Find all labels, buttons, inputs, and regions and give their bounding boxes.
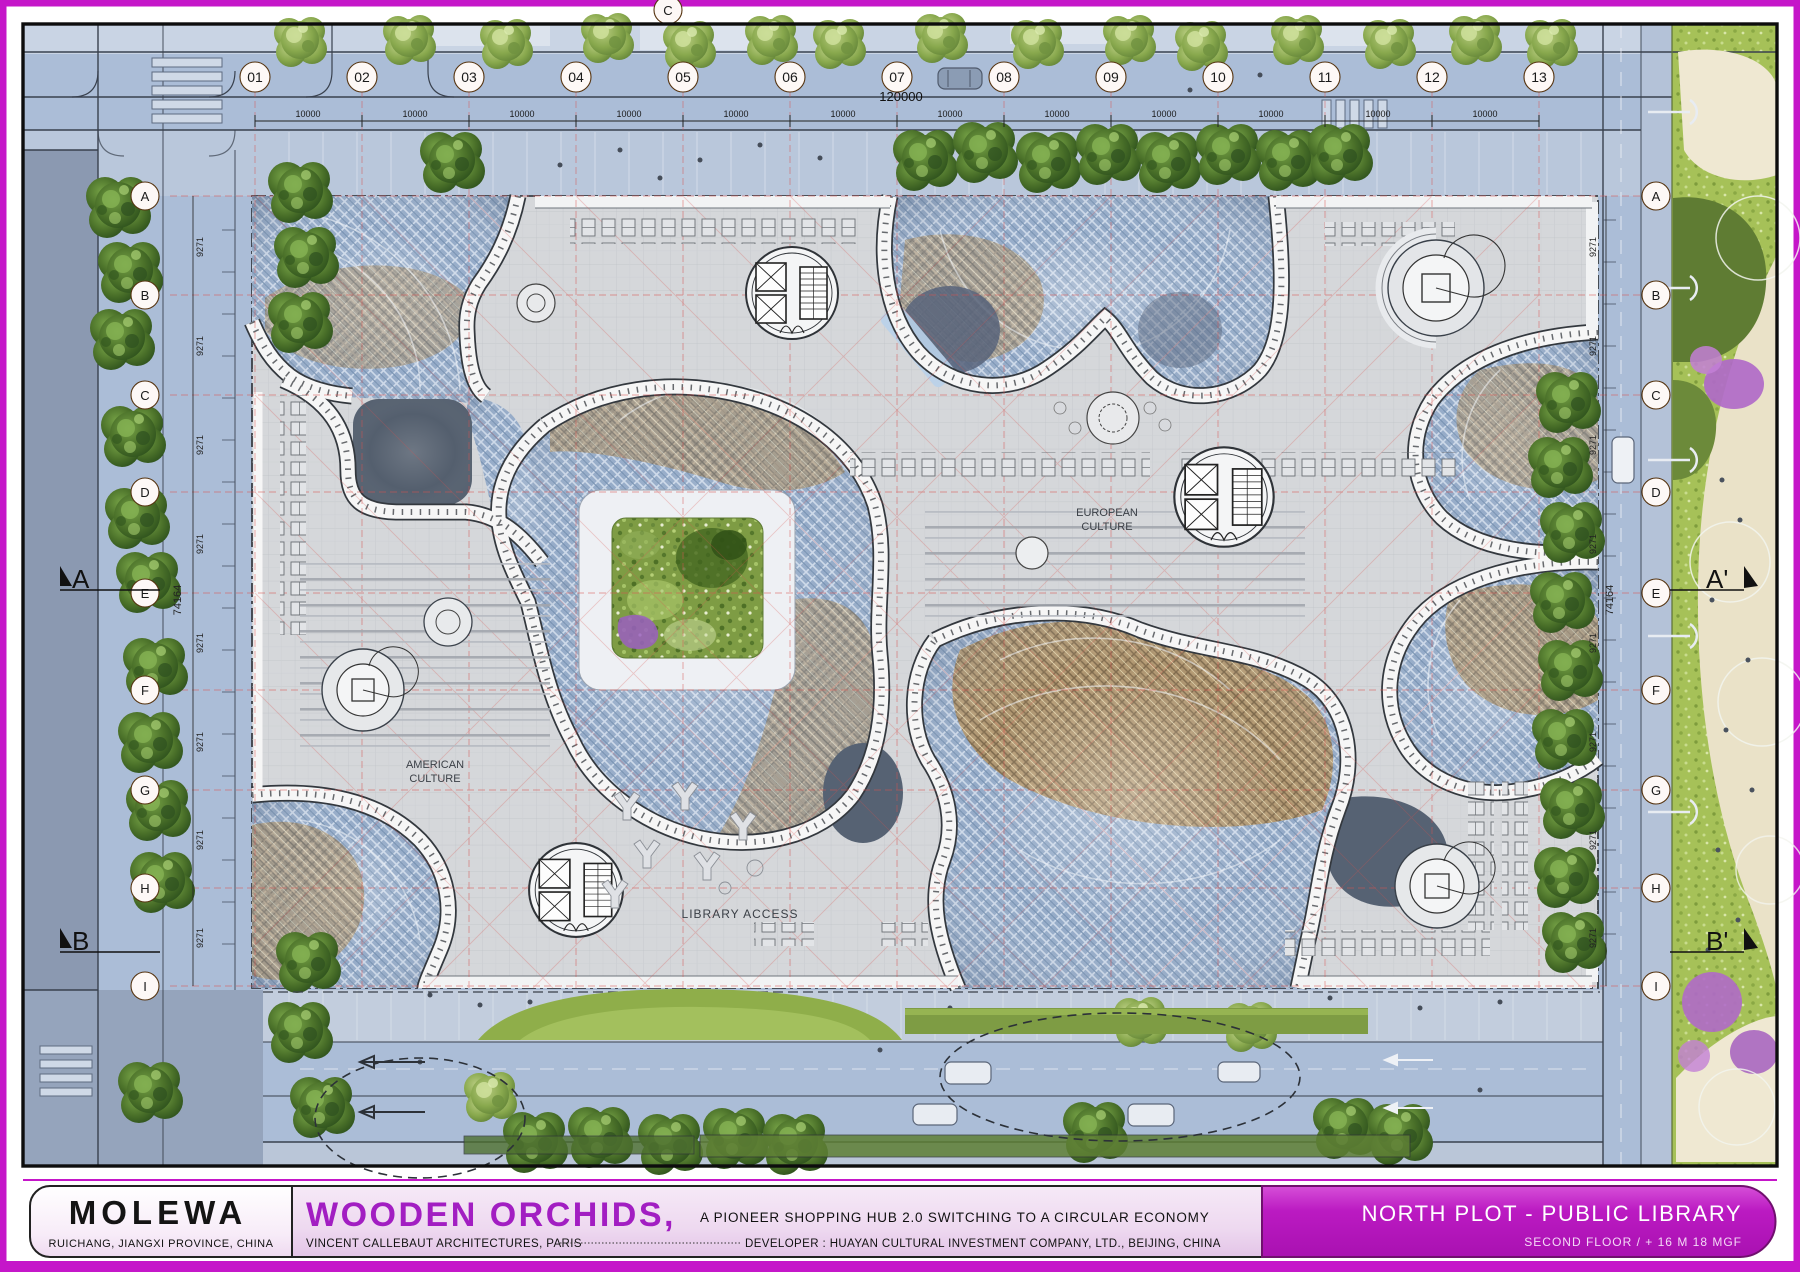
svg-text:01: 01: [247, 69, 263, 85]
svg-text:11: 11: [1318, 69, 1333, 85]
svg-text:10000: 10000: [509, 109, 534, 119]
svg-text:DEVELOPER : HUAYAN CULTURAL IN: DEVELOPER : HUAYAN CULTURAL INVESTMENT C…: [745, 1238, 1221, 1250]
svg-text:13: 13: [1531, 69, 1547, 85]
svg-text:A: A: [1652, 189, 1661, 204]
svg-text:B: B: [141, 288, 150, 303]
svg-text:E: E: [141, 586, 150, 601]
svg-text:9271: 9271: [1588, 534, 1598, 554]
svg-text:9271: 9271: [1588, 336, 1598, 356]
svg-text:EUROPEAN: EUROPEAN: [1076, 507, 1138, 519]
svg-text:F: F: [141, 683, 149, 698]
svg-text:9271: 9271: [195, 534, 205, 554]
svg-text:H: H: [140, 881, 149, 896]
svg-text:D: D: [140, 485, 149, 500]
svg-text:9271: 9271: [195, 435, 205, 455]
svg-text:10000: 10000: [402, 109, 427, 119]
svg-text:10000: 10000: [616, 109, 641, 119]
svg-text:9271: 9271: [195, 633, 205, 653]
svg-text:9271: 9271: [1588, 633, 1598, 653]
svg-text:06: 06: [782, 69, 798, 85]
svg-text:10000: 10000: [830, 109, 855, 119]
svg-text:VINCENT CALLEBAUT ARCHITECTURE: VINCENT CALLEBAUT ARCHITECTURES, PARIS: [306, 1238, 582, 1250]
svg-text:10000: 10000: [1044, 109, 1069, 119]
svg-text:9271: 9271: [1588, 928, 1598, 948]
svg-text:9271: 9271: [1588, 830, 1598, 850]
svg-text:10000: 10000: [723, 109, 748, 119]
svg-text:AMERICAN: AMERICAN: [406, 759, 464, 771]
svg-text:04: 04: [568, 69, 584, 85]
svg-text:10000: 10000: [937, 109, 962, 119]
svg-text:9271: 9271: [1588, 732, 1598, 752]
svg-text:G: G: [1651, 783, 1661, 798]
svg-text:E: E: [1652, 586, 1661, 601]
svg-text:05: 05: [675, 69, 691, 85]
svg-text:10: 10: [1210, 69, 1226, 85]
svg-text:74164: 74164: [172, 585, 184, 616]
svg-text:02: 02: [354, 69, 370, 85]
svg-text:NORTH PLOT - PUBLIC LIBRARY: NORTH PLOT - PUBLIC LIBRARY: [1362, 1201, 1742, 1226]
svg-text:C: C: [1651, 388, 1660, 403]
svg-text:SECOND FLOOR / + 16 M 18 MGF: SECOND FLOOR / + 16 M 18 MGF: [1524, 1235, 1742, 1249]
svg-text:MOLEWA: MOLEWA: [69, 1194, 247, 1231]
svg-text:07: 07: [889, 69, 905, 85]
svg-text:RUICHANG, JIANGXI PROVINCE, CH: RUICHANG, JIANGXI PROVINCE, CHINA: [49, 1238, 274, 1250]
svg-text:03: 03: [461, 69, 477, 85]
svg-text:12: 12: [1424, 69, 1440, 85]
svg-text:08: 08: [996, 69, 1012, 85]
svg-text:CULTURE: CULTURE: [1081, 521, 1132, 533]
svg-text:C: C: [663, 3, 672, 18]
svg-text:F: F: [1652, 683, 1660, 698]
svg-text:10000: 10000: [1472, 109, 1497, 119]
svg-text:9271: 9271: [195, 336, 205, 356]
svg-text:9271: 9271: [195, 928, 205, 948]
svg-text:10000: 10000: [295, 109, 320, 119]
svg-text:CULTURE: CULTURE: [409, 773, 460, 785]
svg-text:A: A: [141, 189, 150, 204]
svg-text:10000: 10000: [1365, 109, 1390, 119]
svg-text:10000: 10000: [1258, 109, 1283, 119]
svg-text:G: G: [140, 783, 150, 798]
svg-text:9271: 9271: [195, 237, 205, 257]
svg-text:D: D: [1651, 485, 1660, 500]
svg-text:9271: 9271: [1588, 435, 1598, 455]
svg-text:9271: 9271: [195, 830, 205, 850]
svg-text:09: 09: [1103, 69, 1119, 85]
svg-text:C: C: [140, 388, 149, 403]
svg-text:WOODEN ORCHIDS,: WOODEN ORCHIDS,: [306, 1196, 676, 1234]
svg-text:B: B: [1652, 288, 1661, 303]
svg-text:I: I: [143, 979, 147, 994]
svg-text:9271: 9271: [195, 732, 205, 752]
svg-text:10000: 10000: [1151, 109, 1176, 119]
svg-text:9271: 9271: [1588, 237, 1598, 257]
svg-text:LIBRARY ACCESS: LIBRARY ACCESS: [682, 907, 799, 921]
svg-text:A PIONEER SHOPPING HUB 2.0 SWI: A PIONEER SHOPPING HUB 2.0 SWITCHING TO …: [700, 1210, 1210, 1225]
svg-text:I: I: [1654, 979, 1658, 994]
svg-text:H: H: [1651, 881, 1660, 896]
